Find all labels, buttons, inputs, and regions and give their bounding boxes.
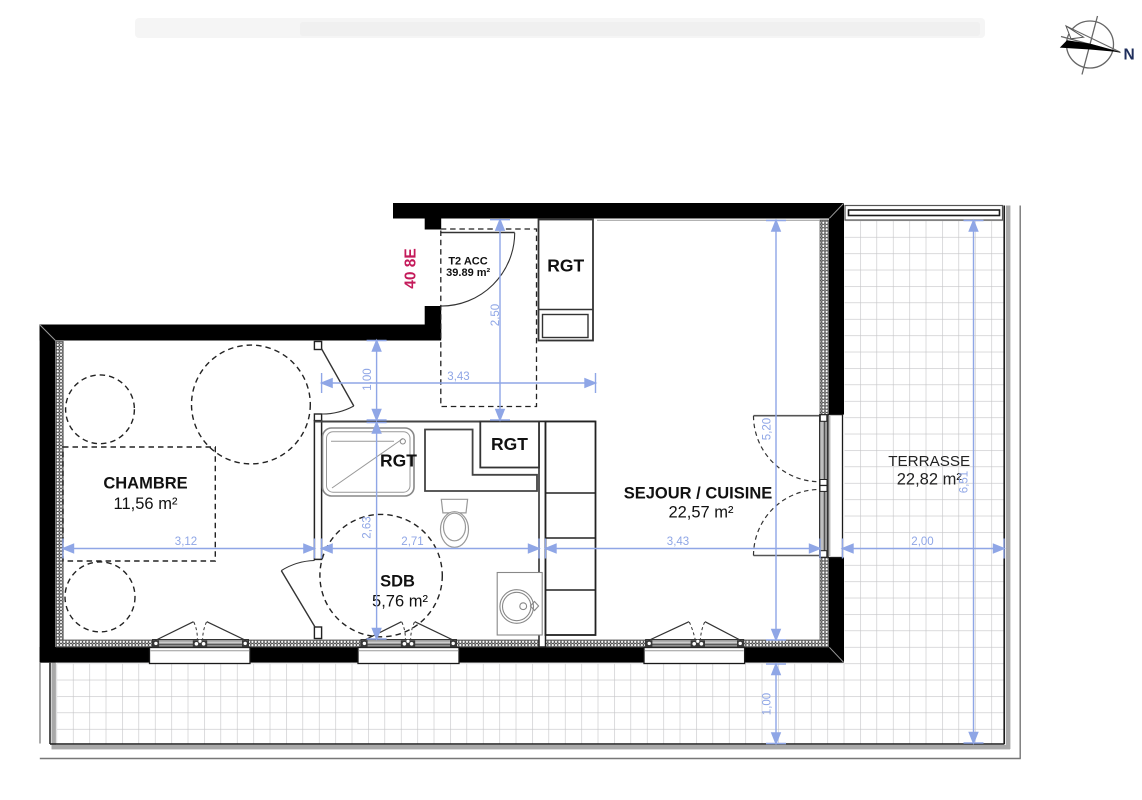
svg-text:N: N (1124, 47, 1135, 64)
svg-text:CHAMBRE: CHAMBRE (103, 475, 187, 493)
svg-text:2,50: 2,50 (490, 304, 502, 326)
svg-text:2,00: 2,00 (911, 536, 933, 548)
svg-text:40 8E: 40 8E (403, 248, 420, 289)
svg-text:RGT: RGT (491, 434, 528, 454)
svg-text:11,56 m²: 11,56 m² (114, 495, 178, 513)
svg-text:RGT: RGT (380, 451, 417, 471)
svg-text:5,20: 5,20 (762, 418, 774, 440)
svg-text:RGT: RGT (547, 256, 584, 276)
svg-text:22,57 m²: 22,57 m² (668, 503, 734, 521)
svg-text:39.89 m²: 39.89 m² (446, 267, 490, 279)
svg-text:3,12: 3,12 (175, 536, 197, 548)
svg-text:SDB: SDB (380, 573, 415, 591)
svg-text:3,43: 3,43 (667, 536, 689, 548)
svg-text:3,43: 3,43 (447, 371, 469, 383)
svg-text:TERRASSE: TERRASSE (888, 453, 970, 470)
svg-text:22,82 m²: 22,82 m² (897, 471, 963, 489)
svg-text:5,76 m²: 5,76 m² (372, 593, 428, 611)
svg-text:T2 ACC: T2 ACC (448, 255, 487, 267)
svg-text:1,00: 1,00 (362, 368, 374, 390)
svg-text:2,63: 2,63 (362, 516, 374, 538)
svg-text:1,00: 1,00 (762, 693, 774, 715)
svg-text:SEJOUR / CUISINE: SEJOUR / CUISINE (624, 484, 773, 502)
svg-text:6,51: 6,51 (959, 471, 971, 493)
svg-text:2,71: 2,71 (401, 536, 423, 548)
